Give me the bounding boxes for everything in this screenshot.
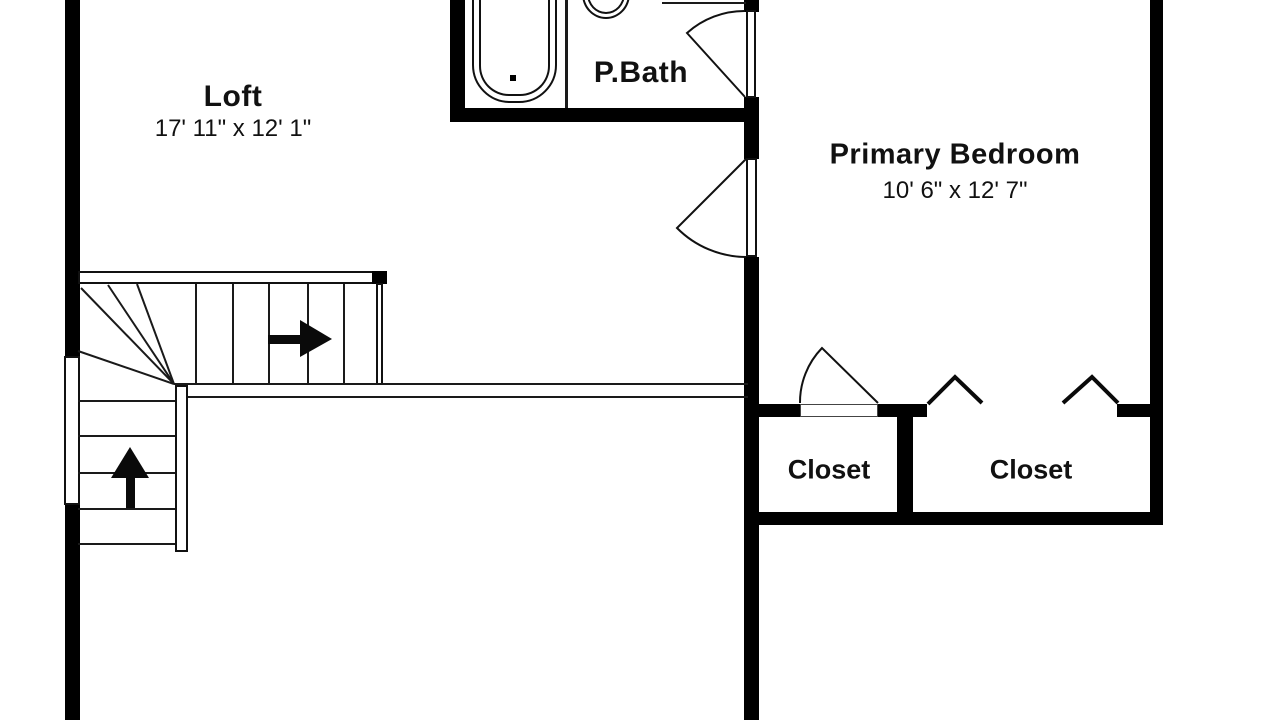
pbath-bottom-wall [450,108,759,122]
landing-edge-line [174,383,748,385]
sink [582,0,630,19]
pbath-door-swing [687,11,745,97]
stair-tread [195,284,197,384]
stair-tread [78,472,175,474]
stair-tread [78,508,175,510]
left-wall-lower [65,503,80,720]
bifold-door-icon [1063,377,1118,403]
stairs-up-arrow-icon [111,447,149,508]
left-wall-upper [65,0,80,358]
closet-top-wall-c [1117,404,1150,417]
stairs-right-arrow-icon [268,320,332,357]
counter-edge-line [662,2,746,4]
window [64,356,80,505]
bifold-door-icon [928,377,982,404]
bedroom-door-swing [677,159,746,257]
closet-top-wall-a [744,404,800,417]
stair-tread [307,284,309,384]
landing-edge-line [188,396,748,398]
stair-tread [343,284,345,384]
bathtub-drain [510,75,516,81]
closet-bottom-wall [744,512,1163,525]
closet-divider-wall [897,404,913,525]
stairs-right-edge-rail [376,283,383,385]
stair-winder-fan [78,284,174,384]
closet-large-label: Closet [990,455,1073,486]
stair-tread [268,284,270,384]
right-wall [1150,0,1163,525]
stair-tread [78,435,175,437]
middle-wall-lower [744,257,759,720]
bathtub [472,0,557,103]
loft-label: Loft [204,80,263,114]
middle-wall-mid [744,97,759,159]
floorplan: Loft 17' 11" x 12' 1" P.Bath Primary Bed… [0,0,1280,720]
bedroom-label: Primary Bedroom [830,139,1081,172]
stairs-lower-rail [175,385,188,552]
stair-tread [78,543,175,545]
stair-tread [78,400,175,402]
loft-dimensions: 17' 11" x 12' 1" [155,115,312,143]
stairs-top-rail [78,271,374,284]
closet-door-swing [800,348,878,403]
closet-door-panel [800,404,878,417]
bedroom-door-panel [746,158,757,257]
stair-tread [232,284,234,384]
pbath-door-panel [746,10,756,98]
tub-divider-line [565,0,568,108]
pbath-left-wall [450,0,465,122]
closet-small-label: Closet [788,455,871,486]
bedroom-dimensions: 10' 6" x 12' 7" [883,177,1028,205]
pbath-label: P.Bath [594,56,688,90]
